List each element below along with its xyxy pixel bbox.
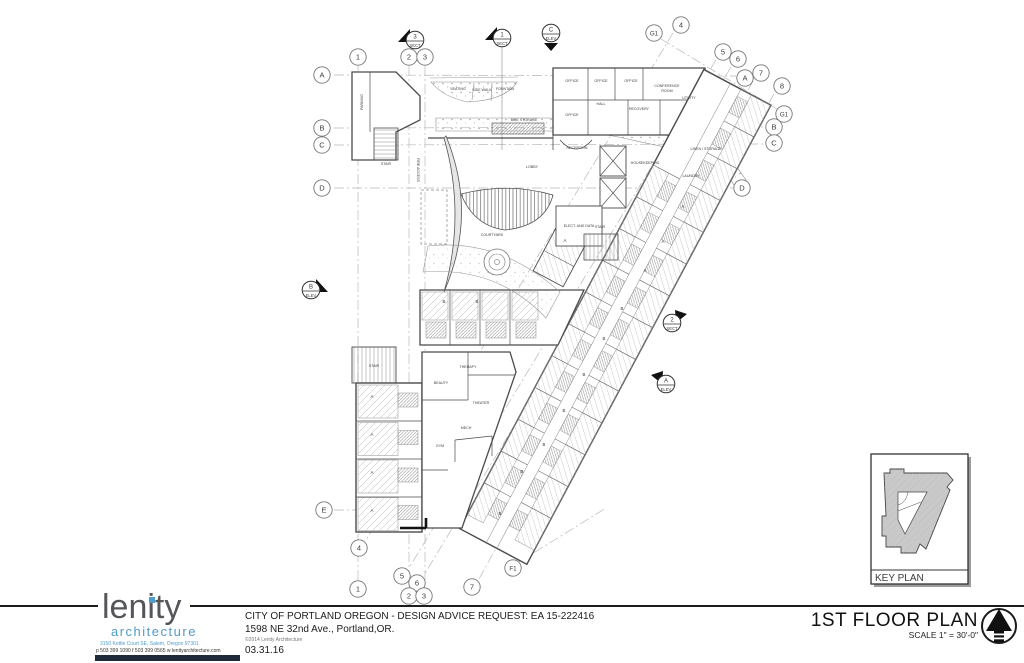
room-label: SIDE WALK: [472, 88, 492, 92]
section-marker: 3SECT: [398, 29, 424, 49]
room-label: MECH: [461, 426, 472, 430]
svg-text:2: 2: [407, 53, 411, 62]
svg-text:3: 3: [422, 592, 426, 601]
unit-label: B: [583, 372, 586, 377]
grid-bubble: A: [737, 70, 753, 86]
logo-wordmark: lenity: [102, 588, 181, 627]
logo-brand-bar: [95, 655, 240, 661]
grid-bubble: 7: [753, 65, 769, 81]
building-walls: [352, 68, 771, 564]
unit-label: B: [499, 511, 502, 516]
room-label: OFFICE: [565, 79, 579, 83]
svg-text:5: 5: [400, 572, 404, 581]
logo-address: 3150 Kettle Court SE, Salem, Oregon 9730…: [100, 641, 199, 647]
svg-text:D: D: [739, 184, 745, 193]
room-label: ROOM: [661, 89, 672, 93]
svg-text:A: A: [742, 74, 747, 83]
unit-label: B: [543, 442, 546, 447]
svg-text:G1: G1: [780, 112, 789, 119]
project-title: CITY OF PORTLAND OREGON - DESIGN ADVICE …: [245, 611, 594, 622]
unit-label: A: [564, 238, 567, 243]
room-label: OFFICE: [565, 113, 579, 117]
room-label: ELECT. AND DATA: [564, 224, 595, 228]
grid-bubble: 5: [394, 568, 410, 584]
floor-plan-drawing: 123G1456A78G1BCABCDED4156237F1 3SECT1SEC…: [0, 0, 1024, 663]
grid-bubble: 2: [401, 49, 417, 65]
grid-bubble: 1: [350, 581, 366, 597]
room-label: STAIR: [595, 225, 606, 229]
unit-label: A: [682, 204, 685, 209]
svg-text:4: 4: [679, 21, 683, 30]
grid-bubble: 1: [350, 49, 366, 65]
grid-bubble: 3: [417, 49, 433, 65]
grid-bubble: G1: [646, 25, 662, 41]
svg-text:6: 6: [736, 55, 740, 64]
svg-text:SECT: SECT: [666, 326, 678, 331]
grid-bubble: C: [314, 137, 330, 153]
logo-subtitle: architecture: [111, 624, 197, 639]
grid-bubble: 8: [774, 78, 790, 94]
svg-text:6: 6: [415, 579, 419, 588]
room-label: OFFICE: [594, 79, 608, 83]
room-label: BEAUTY: [434, 381, 449, 385]
unit-label: A: [644, 268, 647, 273]
room-label: GYM: [436, 444, 444, 448]
logo: lenity architecture 3150 Kettle Court SE…: [96, 594, 246, 660]
key-plan-label: KEY PLAN: [875, 573, 924, 584]
svg-text:B: B: [309, 285, 313, 291]
unit-label: B: [443, 299, 446, 304]
logo-contact: p 503 399 1090 f 503 399 0565 w lenityar…: [96, 648, 221, 654]
svg-text:ELEV: ELEV: [661, 387, 672, 392]
svg-text:4: 4: [357, 544, 361, 553]
svg-text:C: C: [319, 141, 325, 150]
svg-text:SECT: SECT: [409, 43, 421, 48]
grid-bubble: D: [314, 180, 330, 196]
svg-text:C: C: [549, 28, 554, 34]
svg-text:1: 1: [356, 585, 360, 594]
room-label: STAIR: [369, 364, 380, 368]
svg-text:A: A: [664, 379, 668, 385]
unit-label: B: [603, 336, 606, 341]
grid-bubble: 3: [416, 588, 432, 604]
svg-text:ELEV: ELEV: [306, 293, 317, 298]
sheet-scale: SCALE 1" = 30'-0": [909, 630, 978, 640]
section-marker: BELEV: [302, 279, 328, 299]
svg-text:C: C: [771, 139, 777, 148]
grid-bubble: E: [316, 502, 332, 518]
room-label: CONFERENCE: [654, 84, 680, 88]
room-label: THERAPY: [460, 365, 478, 369]
room-label: SEATING: [450, 87, 466, 91]
unit-label: A: [371, 432, 374, 437]
room-label: UTILITY: [682, 96, 696, 100]
section-marker: AELEV: [651, 371, 675, 393]
grid-bubble: D: [734, 180, 750, 196]
unit-label: A: [371, 470, 374, 475]
drawing-sheet: 123G1456A78G1BCABCDED4156237F1 3SECT1SEC…: [0, 0, 1024, 663]
room-label: LOBBY: [526, 165, 539, 169]
svg-text:D: D: [319, 184, 325, 193]
unit-label: A: [371, 394, 374, 399]
room-label: FOUNTAIN: [496, 87, 515, 91]
room-label: FIRE ACCESS: [416, 158, 420, 182]
svg-text:B: B: [319, 124, 324, 133]
svg-text:SECT: SECT: [496, 41, 508, 46]
room-label: COURTYARD: [481, 233, 504, 237]
key-plan: KEY PLAN: [871, 454, 971, 587]
svg-text:E: E: [321, 506, 326, 515]
copyright-note: ©2014 Lenity Architecture: [245, 637, 302, 643]
unit-label: B: [621, 306, 624, 311]
unit-label: B: [563, 408, 566, 413]
svg-text:7: 7: [470, 583, 474, 592]
room-label: LINEN / STORAGE: [690, 147, 722, 151]
grid-bubble: F1: [505, 560, 521, 576]
unit-label: A: [371, 508, 374, 513]
grid-bubble: B: [314, 120, 330, 136]
svg-text:8: 8: [780, 82, 784, 91]
north-arrow-icon: [982, 609, 1016, 643]
title-block-rule-left: [0, 605, 98, 607]
room-label: BIKE STORAGE: [511, 118, 538, 122]
grid-bubble: 2: [401, 588, 417, 604]
svg-text:F1: F1: [509, 566, 517, 573]
svg-text:2: 2: [407, 592, 411, 601]
svg-text:5: 5: [721, 48, 725, 57]
svg-text:7: 7: [759, 69, 763, 78]
room-label: RECEPTION: [567, 146, 588, 150]
grid-bubble: A: [314, 67, 330, 83]
section-marker: 2SECT: [663, 310, 687, 332]
drawing-date: 03.31.16: [245, 645, 284, 656]
section-marker: 1SECT: [485, 27, 511, 47]
grid-bubble: 5: [715, 44, 731, 60]
svg-text:1: 1: [356, 53, 360, 62]
svg-text:3: 3: [423, 53, 427, 62]
grid-bubble: 7: [464, 579, 480, 595]
grid-bubble: C: [766, 135, 782, 151]
room-label: PARKING: [360, 94, 364, 110]
unit-label: B: [521, 469, 524, 474]
sheet-title: 1ST FLOOR PLAN: [811, 610, 978, 632]
project-address: 1598 NE 32nd Ave., Portland,OR.: [245, 624, 394, 635]
section-marker: CELEV: [542, 24, 560, 51]
room-label: THEATER: [473, 401, 490, 405]
grid-bubble: 4: [351, 540, 367, 556]
unit-label: B: [476, 299, 479, 304]
room-label: RECOVERY: [629, 107, 650, 111]
room-label: HOUSEKEEPING: [631, 161, 660, 165]
room-label: HALL: [597, 102, 606, 106]
room-label: STAIR: [381, 162, 392, 166]
title-block-rule-right: [190, 605, 1024, 607]
svg-text:A: A: [319, 71, 324, 80]
svg-text:B: B: [771, 123, 776, 132]
room-label: OFFICE: [624, 79, 638, 83]
svg-text:G1: G1: [650, 31, 659, 38]
logo-i-dot: [149, 597, 155, 603]
svg-text:ELEV: ELEV: [546, 36, 557, 41]
room-label: LAUNDRY: [682, 174, 700, 178]
grid-bubble: B: [766, 119, 782, 135]
grid-bubble: 6: [730, 51, 746, 67]
unit-label: A: [662, 239, 665, 244]
grid-bubble: 4: [673, 17, 689, 33]
